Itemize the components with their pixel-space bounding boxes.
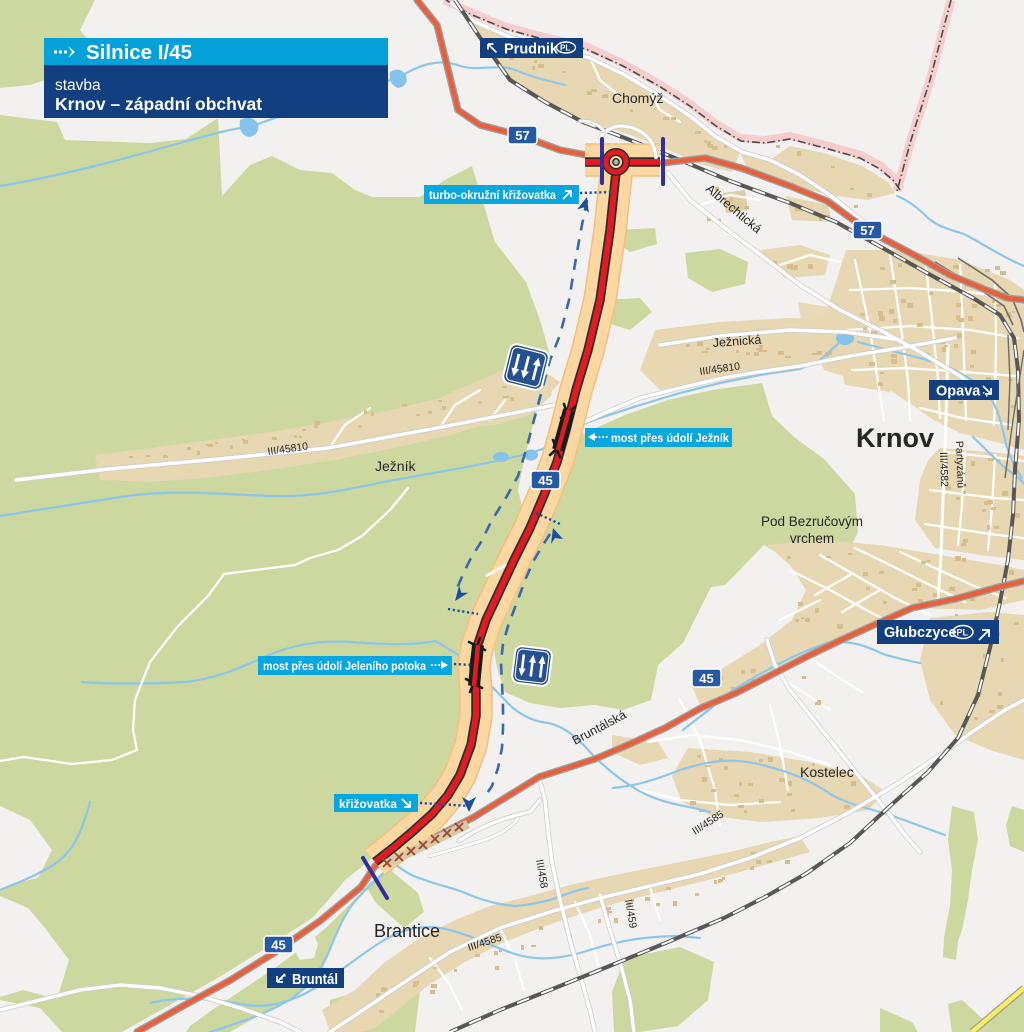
svg-text:most přes údolí Ježník: most přes údolí Ježník [611, 431, 729, 445]
svg-text:Ježník: Ježník [375, 458, 416, 474]
svg-text:stavba: stavba [55, 77, 101, 94]
svg-text:Bruntál: Bruntál [292, 971, 338, 988]
svg-text:PL: PL [957, 628, 969, 638]
svg-text:Brantice: Brantice [374, 921, 440, 941]
svg-text:turbo-okružní křižovatka: turbo-okružní křižovatka [429, 188, 556, 202]
svg-text:most přes údolí Jeleního potok: most přes údolí Jeleního potoka [263, 660, 427, 673]
svg-text:Partyzánů: Partyzánů [953, 441, 967, 489]
svg-text:PL: PL [560, 44, 570, 53]
svg-text:křižovatka: křižovatka [339, 797, 397, 811]
svg-text:57: 57 [515, 128, 529, 143]
svg-text:57: 57 [860, 223, 874, 238]
svg-text:Kostelec: Kostelec [800, 764, 854, 780]
svg-text:45: 45 [538, 473, 552, 488]
svg-text:Pod Bezručovým: Pod Bezručovým [761, 514, 863, 529]
svg-text:Chomýž: Chomýž [612, 90, 663, 106]
svg-text:Opava: Opava [936, 384, 981, 400]
svg-text:Silnice I/45: Silnice I/45 [86, 41, 192, 64]
svg-text:45: 45 [699, 671, 713, 686]
svg-text:45: 45 [271, 938, 285, 953]
svg-text:III/4582: III/4582 [937, 452, 950, 488]
svg-text:Krnov – západní obchvat: Krnov – západní obchvat [55, 94, 262, 114]
svg-text:Krnov: Krnov [856, 423, 934, 453]
svg-text:Głubczyce: Głubczyce [884, 625, 957, 641]
svg-text:vrchem: vrchem [790, 531, 834, 546]
svg-text:Prudnik: Prudnik [504, 42, 559, 58]
